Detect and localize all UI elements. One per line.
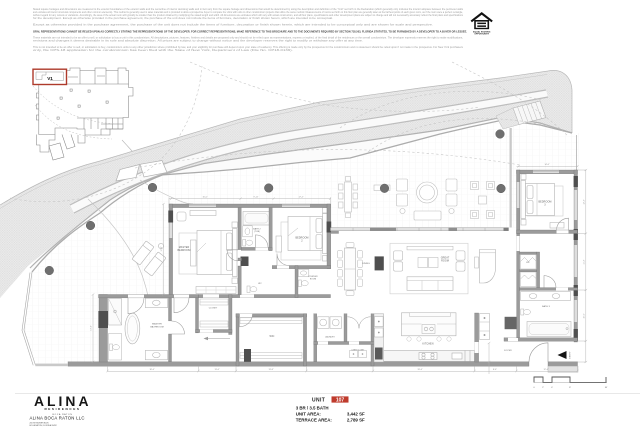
svg-text:3,442 SF: 3,442 SF (347, 411, 365, 416)
svg-text:14'-6": 14'-6" (544, 164, 549, 166)
svg-text:TERRACE AREA:: TERRACE AREA: (296, 417, 333, 422)
svg-text:for the development. Except as: for the development. Except as otherwise… (33, 17, 333, 20)
svg-text:UNIT: UNIT (312, 397, 325, 403)
svg-text:12'-4": 12'-4" (543, 369, 548, 371)
svg-text:BATHROOM: BATHROOM (150, 326, 163, 329)
svg-text:17'-8": 17'-8" (161, 246, 163, 251)
svg-text:3 BR / 3.5 BATH: 3 BR / 3.5 BATH (296, 405, 329, 410)
svg-text:only, file CPS-18 application: only, file CPS-18 application for the co… (33, 49, 293, 52)
svg-text:13'-6": 13'-6" (214, 369, 219, 371)
svg-text:ROOM: ROOM (310, 279, 317, 281)
svg-text:V1: V1 (47, 76, 53, 81)
svg-text:17'-2": 17'-2" (298, 197, 303, 199)
svg-text:107: 107 (336, 397, 345, 403)
svg-text:CLOSET: CLOSET (209, 308, 218, 310)
svg-text:8'-6": 8'-6" (493, 369, 497, 371)
svg-text:WC: WC (258, 283, 262, 285)
svg-text:BOCA RATON, FLORIDA 33432: BOCA RATON, FLORIDA 33432 (30, 424, 57, 427)
svg-text:9'-11": 9'-11" (254, 197, 259, 199)
svg-text:BATH 3: BATH 3 (542, 305, 550, 308)
svg-text:BEDROOM: BEDROOM (177, 249, 190, 252)
svg-text:LINEN CLOSET: LINEN CLOSET (352, 350, 365, 352)
svg-text:revisions and changes it deems: revisions and changes it deems desirable… (33, 40, 363, 43)
svg-text:15'-0": 15'-0" (202, 197, 207, 199)
svg-text:WIC: WIC (270, 335, 275, 338)
svg-text:ALINA BOCA RATON LLC: ALINA BOCA RATON LLC (30, 416, 85, 421)
svg-text:KITCHEN: KITCHEN (422, 343, 433, 346)
svg-text:UNIT AREA:: UNIT AREA: (296, 411, 322, 416)
svg-text:OPPORTUNITY: OPPORTUNITY (474, 34, 489, 36)
svg-text:(TUB): (TUB) (254, 231, 260, 233)
svg-text:33'-4": 33'-4" (417, 369, 422, 371)
svg-text:DINING: DINING (362, 263, 370, 265)
svg-text:MASTER: MASTER (152, 323, 162, 326)
svg-text:13'-2": 13'-2" (91, 325, 93, 330)
svg-text:ORAL REPRESENTATIONS CANNOT BE: ORAL REPRESENTATIONS CANNOT BE RELIED UP… (33, 30, 467, 33)
svg-text:ENTRY: ENTRY (570, 351, 572, 359)
svg-text:13'-8": 13'-8" (268, 369, 273, 371)
svg-text:11'-2": 11'-2" (583, 259, 585, 264)
svg-text:2,789 SF: 2,789 SF (347, 417, 365, 422)
svg-text:LAUNDRY: LAUNDRY (325, 336, 335, 339)
svg-text:Except as otherwise provided i: Except as otherwise provided in the purc… (33, 24, 433, 27)
svg-text:12'-4": 12'-4" (583, 199, 585, 204)
svg-text:FOYER: FOYER (504, 350, 512, 352)
svg-text:ROOM: ROOM (441, 260, 449, 263)
svg-text:18'-4": 18'-4" (149, 369, 154, 371)
svg-text:10'-0": 10'-0" (583, 313, 585, 318)
svg-text:RESIDENCES: RESIDENCES (44, 407, 80, 411)
